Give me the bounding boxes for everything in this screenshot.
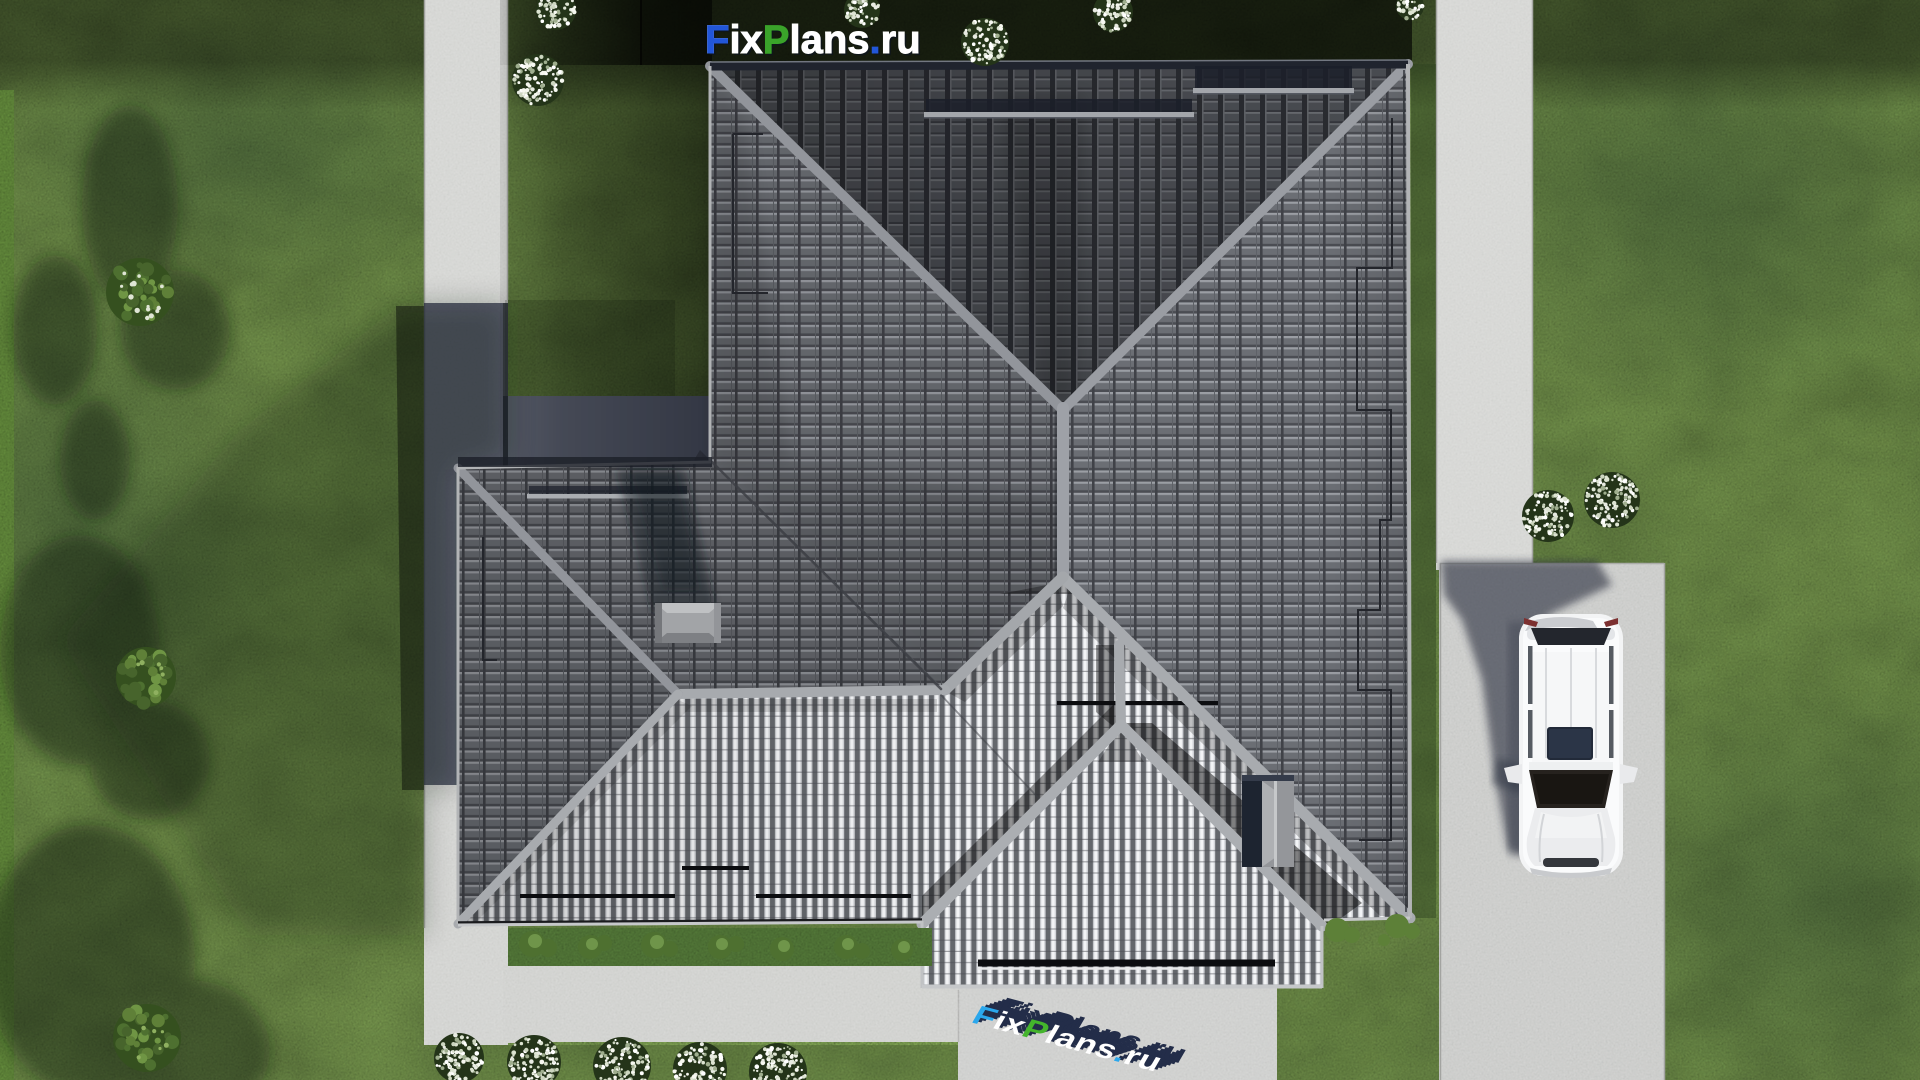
svg-text:F: F — [705, 18, 729, 62]
svg-text:FixPlans.ru: FixPlans.ru — [705, 18, 921, 62]
